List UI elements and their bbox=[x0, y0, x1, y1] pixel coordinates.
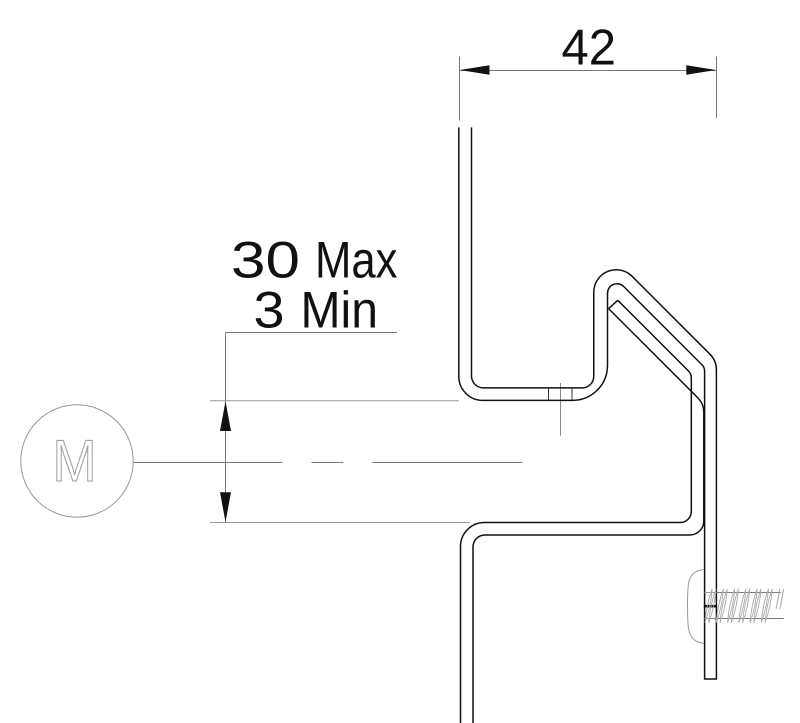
svg-text:3: 3 bbox=[254, 281, 285, 339]
svg-text:Min: Min bbox=[301, 281, 379, 339]
svg-text:M: M bbox=[53, 428, 97, 494]
svg-text:42: 42 bbox=[562, 19, 617, 76]
